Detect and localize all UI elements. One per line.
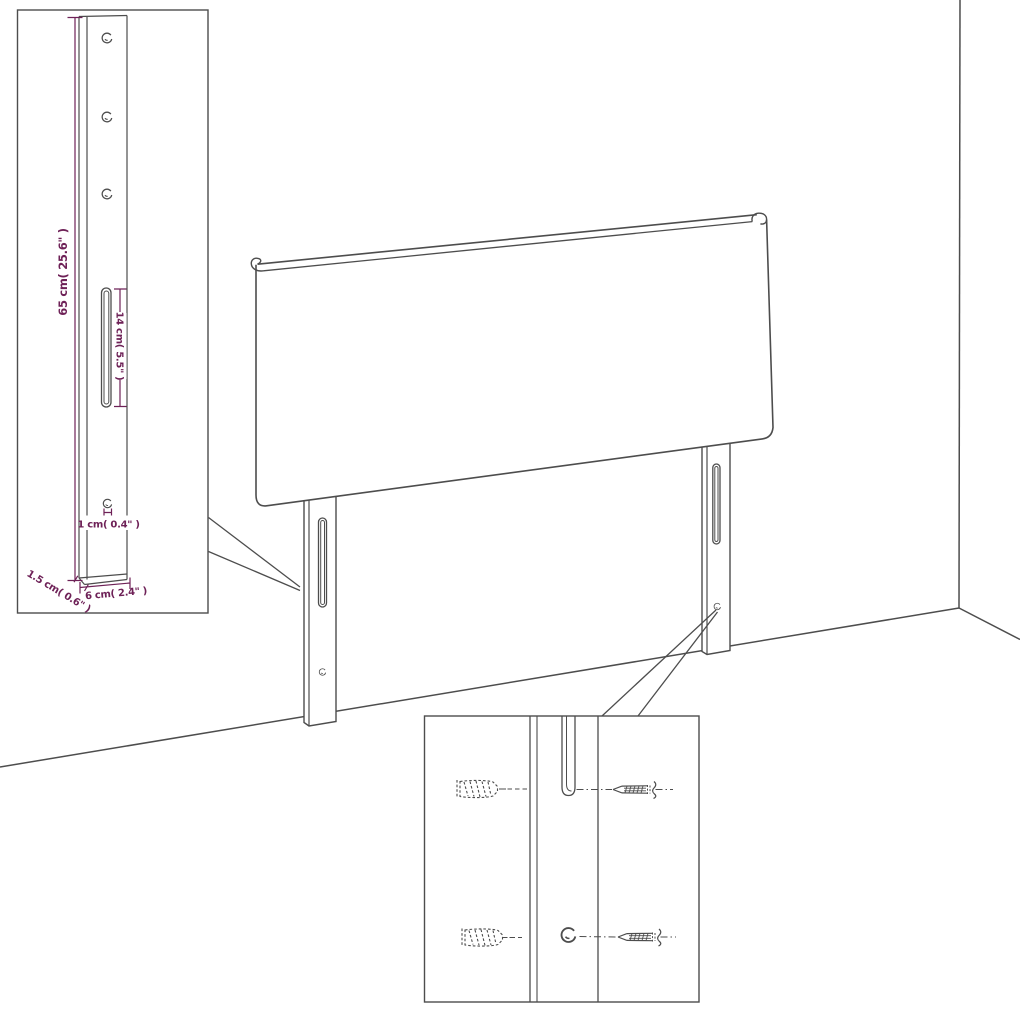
dim-hole-label: 1 cm( 0.4" ): [77, 520, 139, 531]
leg-inset-callout: [209, 518, 301, 591]
wall-corner-line: [959, 0, 960, 608]
leg-detail-inset: 65 cm( 25.6" ) 14 cm( 5.5" ) 1 cm( 0.4" …: [18, 10, 209, 615]
floor-line-right: [959, 608, 1020, 640]
headboard-face: [256, 215, 773, 506]
dim-height-label: 65 cm( 25.6" ): [56, 228, 70, 316]
headboard-panel: [251, 213, 773, 506]
mounting-detail-inset: [425, 716, 700, 1002]
left-leg: [304, 495, 336, 726]
diagram-canvas: 65 cm( 25.6" ) 14 cm( 5.5" ) 1 cm( 0.4" …: [0, 0, 1020, 1020]
headboard-assembly-diagram: 65 cm( 25.6" ) 14 cm( 5.5" ) 1 cm( 0.4" …: [0, 0, 1020, 1020]
right-leg: [702, 443, 730, 655]
mount-inset-callout: [602, 610, 718, 716]
dim-slot-label: 14 cm( 5.5" ): [114, 312, 125, 381]
